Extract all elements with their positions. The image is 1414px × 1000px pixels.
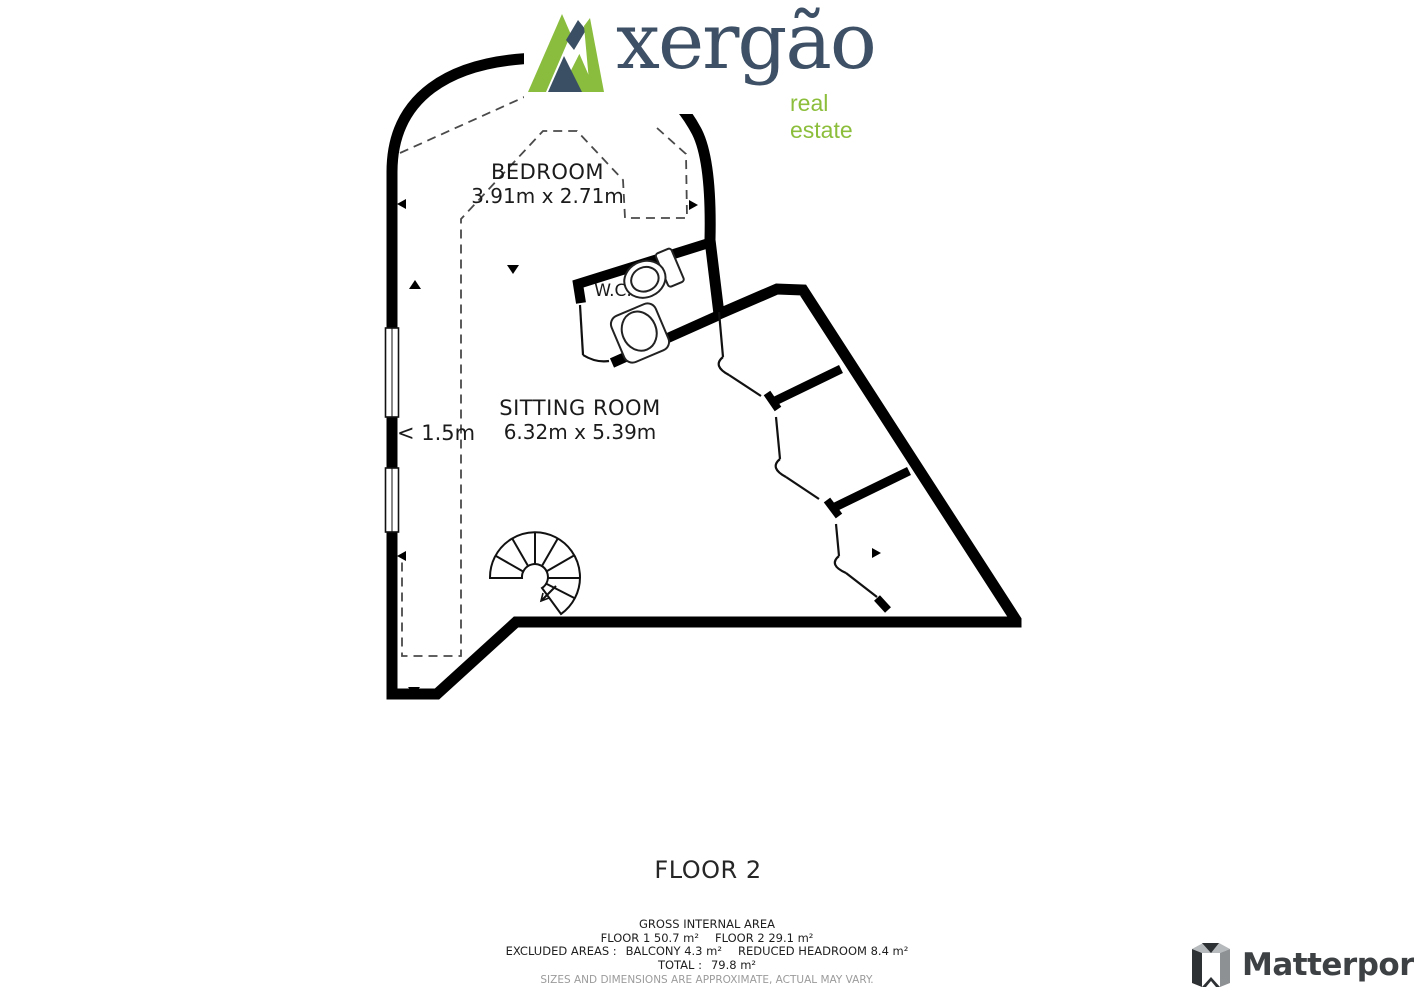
bedroom-name: BEDROOM xyxy=(440,160,655,184)
summary-title: GROSS INTERNAL AREA xyxy=(390,918,1024,932)
sitting-room-dimensions: 6.32m x 5.39m xyxy=(468,420,692,444)
summary-total-label: TOTAL : xyxy=(658,958,702,972)
summary-total-line: TOTAL :79.8 m² xyxy=(390,959,1024,973)
partition-walls xyxy=(767,369,909,610)
spiral-staircase xyxy=(490,532,580,614)
sitting-room-name: SITTING ROOM xyxy=(468,396,692,420)
summary-disclaimer: SIZES AND DIMENSIONS ARE APPROXIMATE, AC… xyxy=(390,974,1024,988)
summary-excluded-line: EXCLUDED AREAS :BALCONY 4.3 m²REDUCED HE… xyxy=(390,945,1024,959)
bedroom-label: BEDROOM 3.91m x 2.71m xyxy=(440,160,655,208)
floor-title: FLOOR 2 xyxy=(558,856,858,884)
summary-floor2: FLOOR 2 29.1 m² xyxy=(715,931,813,945)
agency-tagline: real estate xyxy=(790,90,896,144)
summary-excluded-label: EXCLUDED AREAS : xyxy=(506,944,617,958)
summary-floor1: FLOOR 1 50.7 m² xyxy=(601,931,699,945)
matterport-name: Matterport xyxy=(1242,947,1414,983)
matterport-icon xyxy=(1188,940,1234,990)
bedroom-dimensions: 3.91m x 2.71m xyxy=(440,184,655,208)
sitting-room-label: SITTING ROOM 6.32m x 5.39m xyxy=(468,396,692,444)
agency-logo: xergão real estate xyxy=(524,6,896,114)
headroom-label: < 1.5m xyxy=(397,421,487,445)
agency-name: xergão xyxy=(616,0,875,102)
wc-label: W.C. xyxy=(588,281,638,301)
summary-total-value: 79.8 m² xyxy=(711,958,756,972)
outer-walls xyxy=(392,58,1016,694)
summary-excluded-headroom: REDUCED HEADROOM 8.4 m² xyxy=(738,944,908,958)
agency-logo-icon xyxy=(528,10,604,92)
area-summary: GROSS INTERNAL AREA FLOOR 1 50.7 m²FLOOR… xyxy=(390,918,1024,988)
floorplan-drawing xyxy=(0,0,1414,1000)
summary-excluded-balcony: BALCONY 4.3 m² xyxy=(626,944,722,958)
summary-floors-line: FLOOR 1 50.7 m²FLOOR 2 29.1 m² xyxy=(390,932,1024,946)
matterport-watermark: Matterport xyxy=(1188,940,1414,990)
